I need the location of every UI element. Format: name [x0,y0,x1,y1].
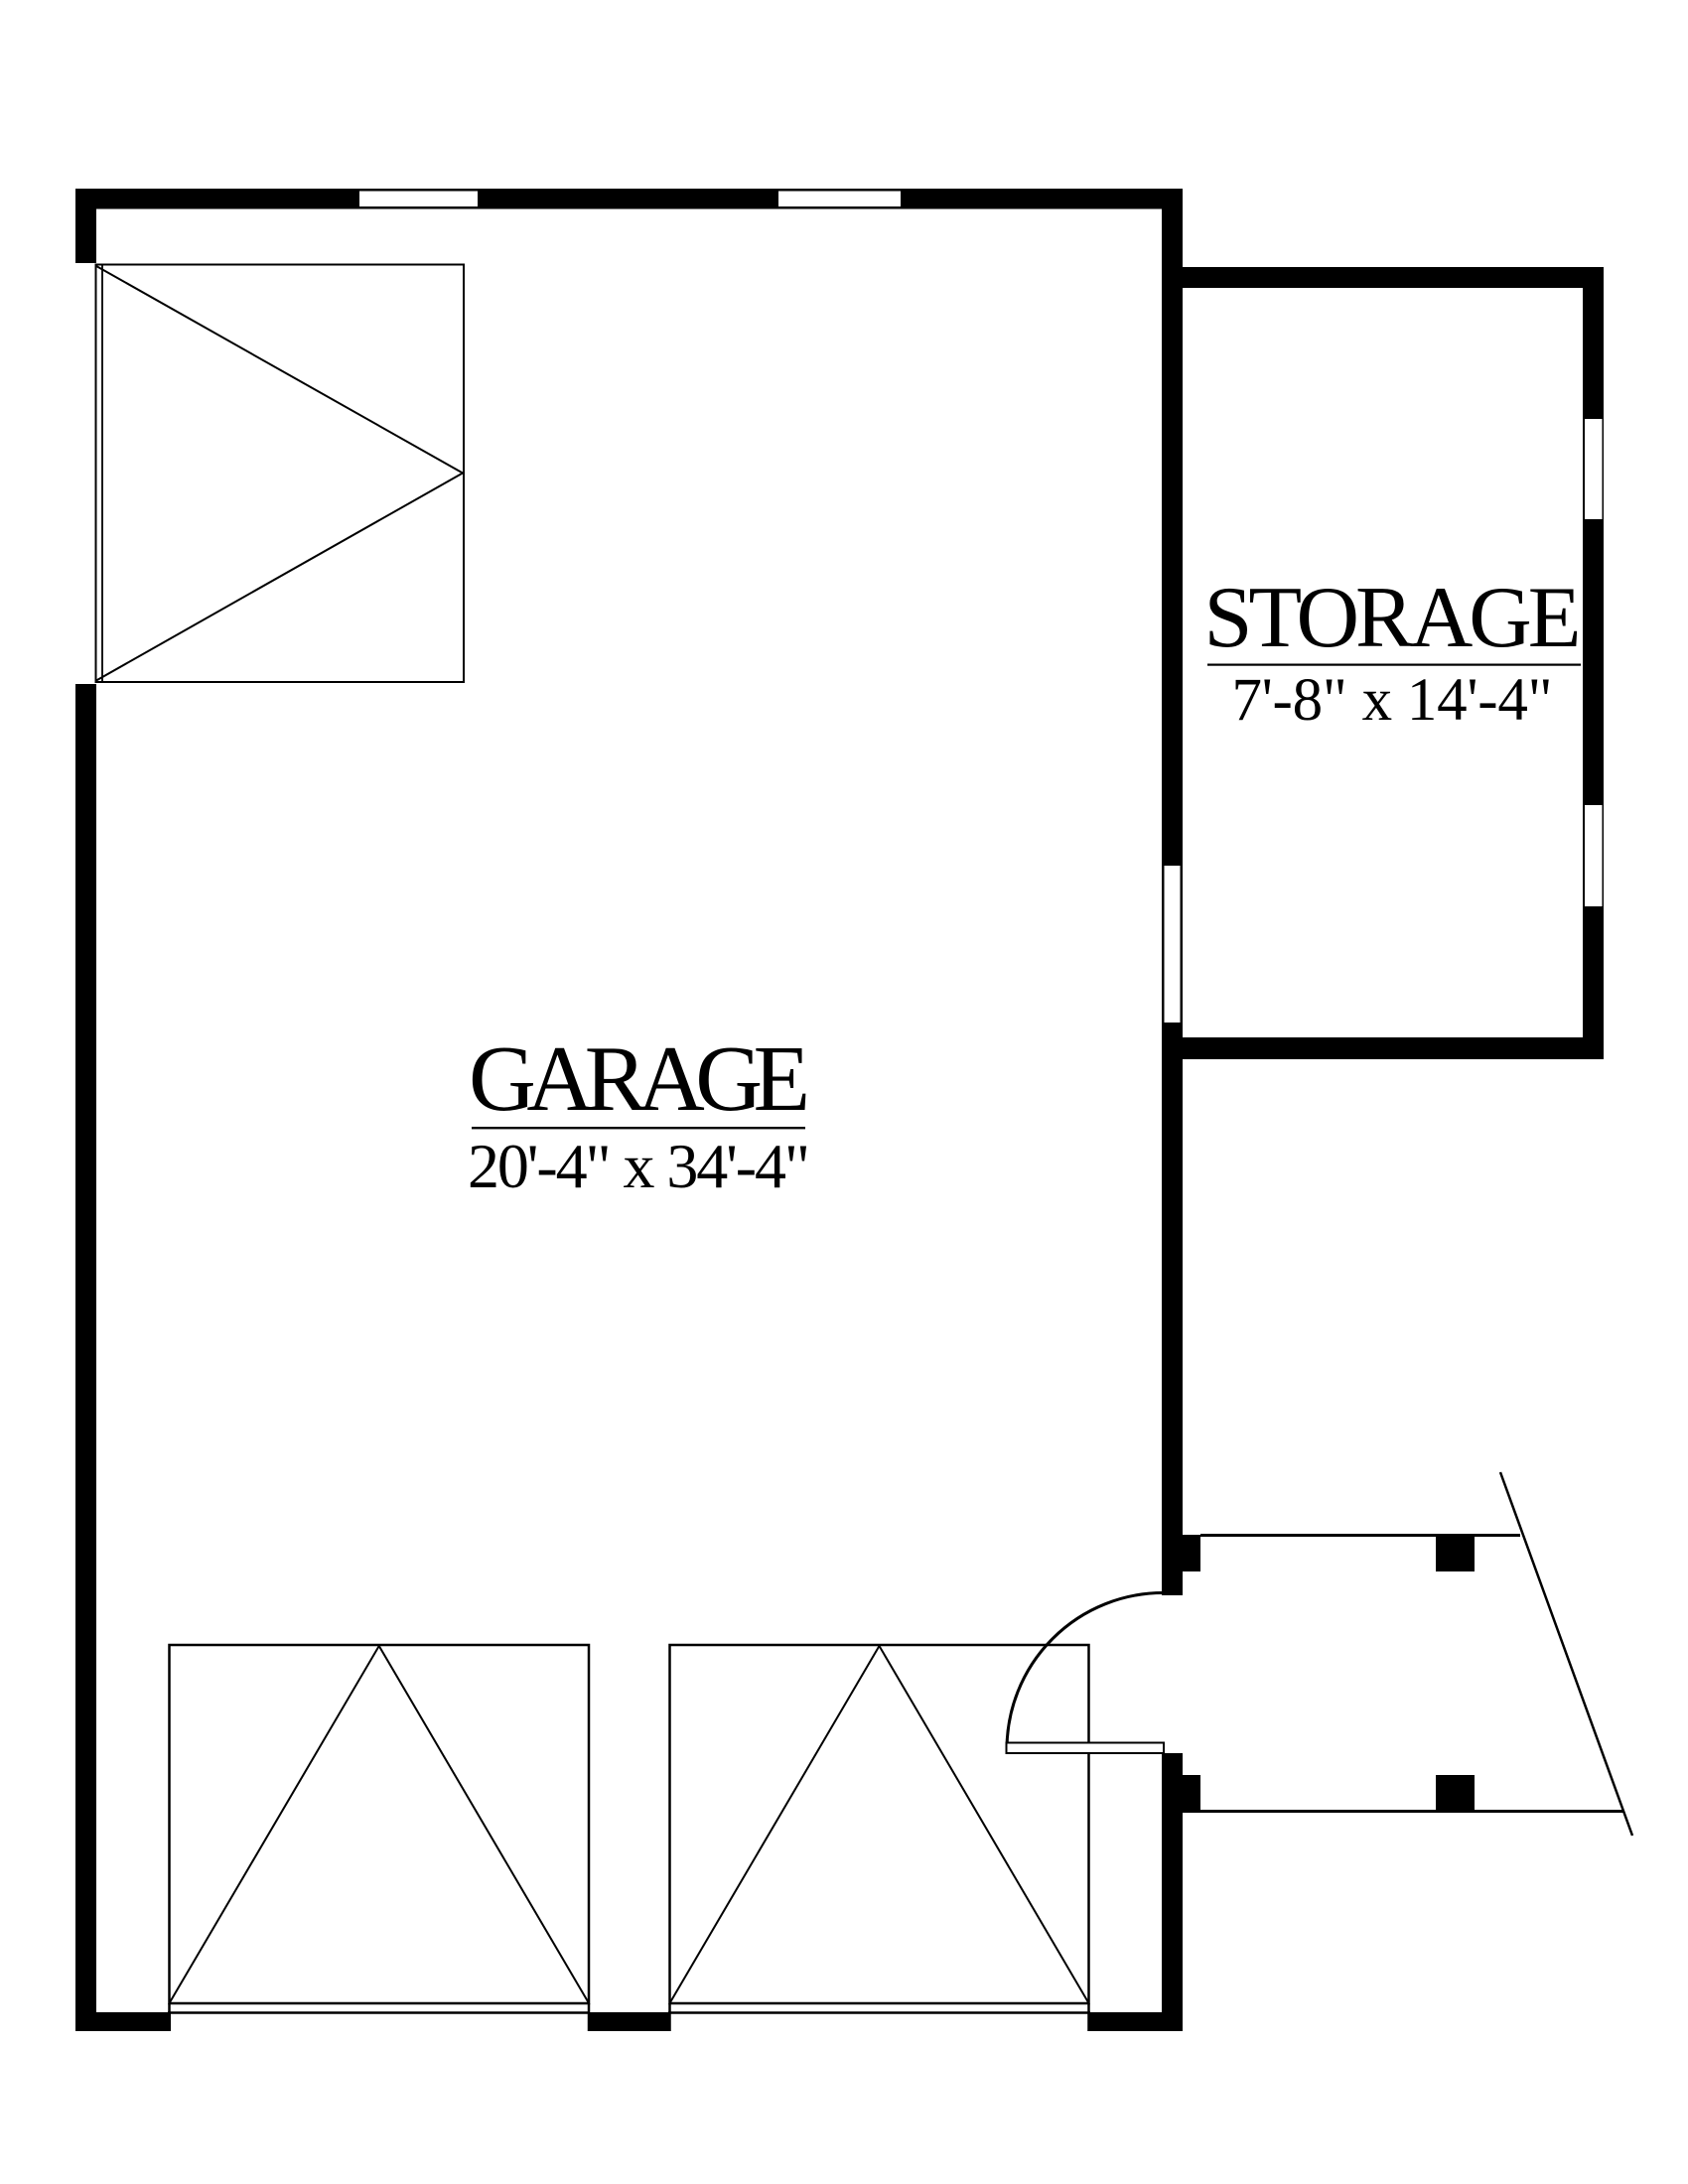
svg-text:20'-4" x 34'-4": 20'-4" x 34'-4" [468,1131,810,1201]
svg-text:STORAGE: STORAGE [1204,570,1582,666]
svg-text:GARAGE: GARAGE [469,1027,810,1131]
svg-text:7'-8" x 14'-4": 7'-8" x 14'-4" [1232,667,1553,734]
